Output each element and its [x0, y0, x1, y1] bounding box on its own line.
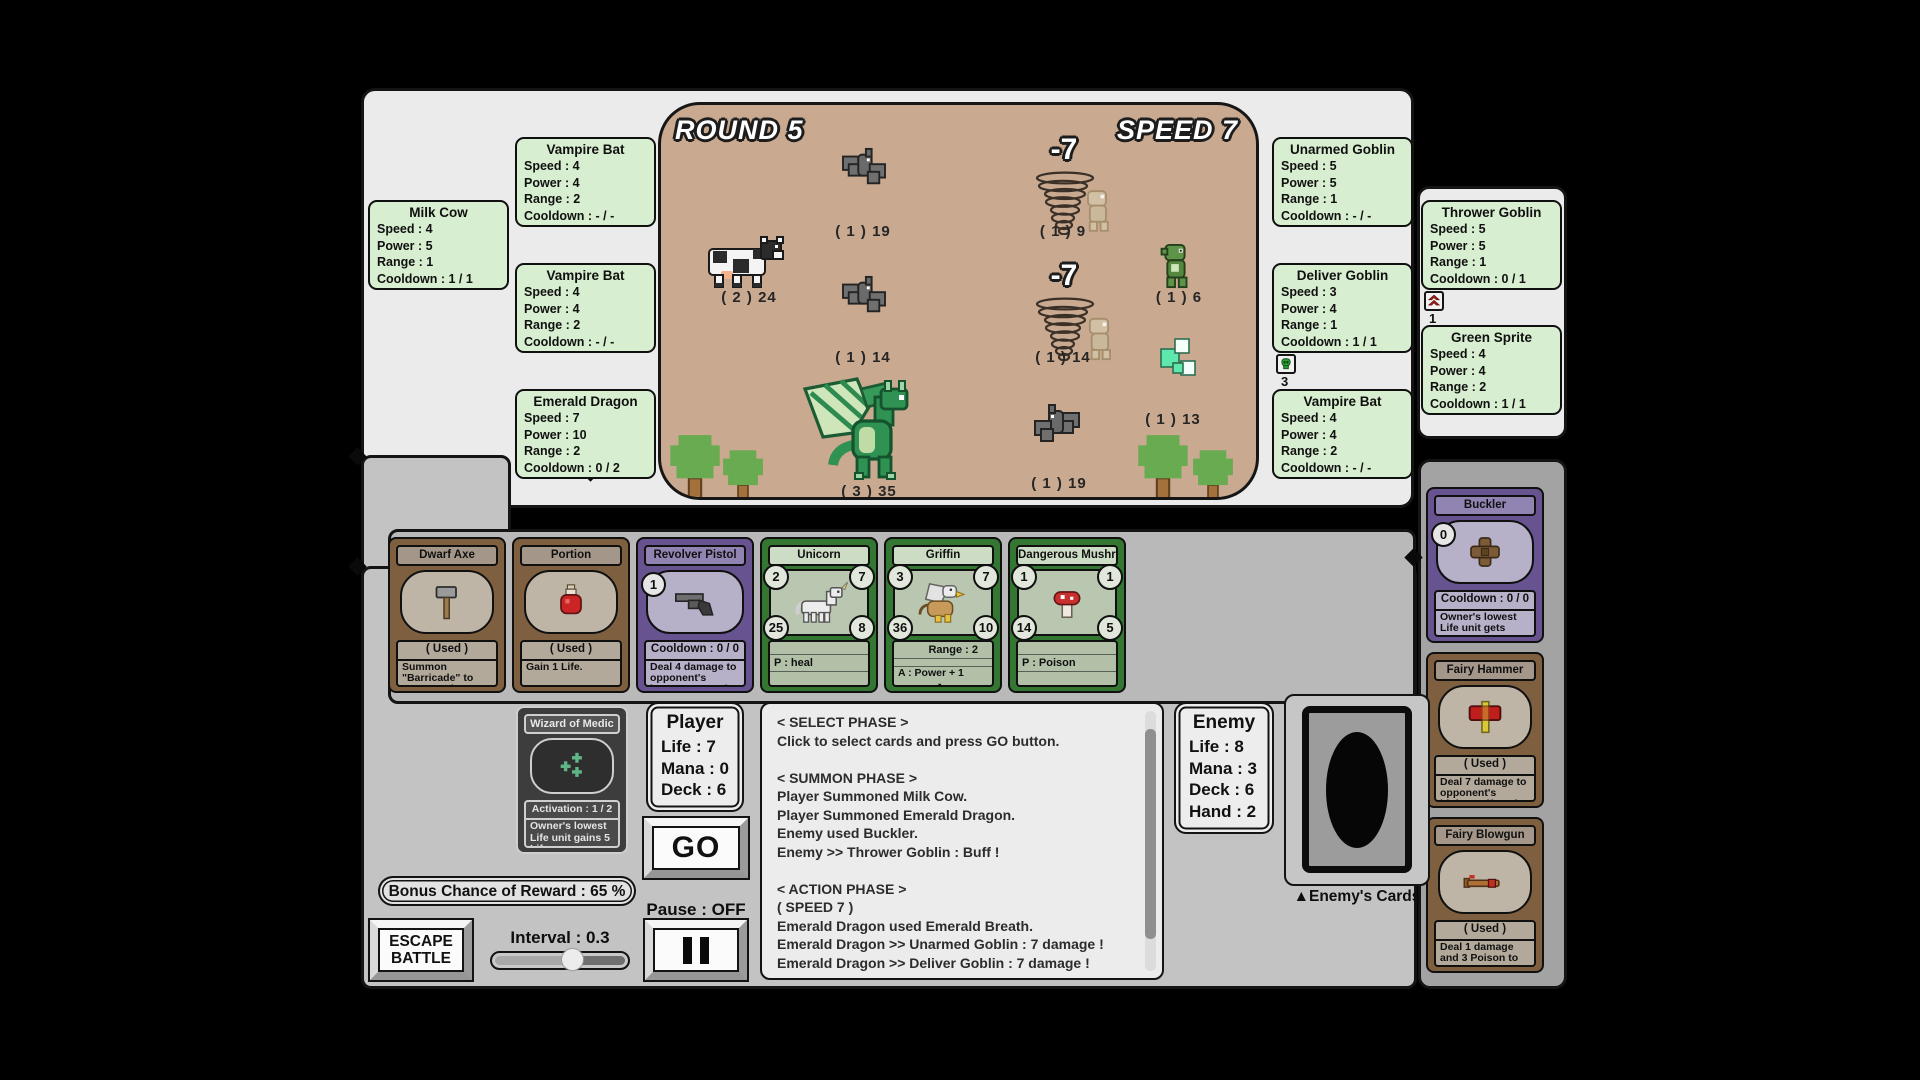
- enemy-card-buckler[interactable]: Buckler 0 Cooldown : 0 / 0 Owner's lowes…: [1426, 487, 1544, 643]
- battlefield: ROUND 5 SPEED 7 ( 1 ) 19 ( 2 ) 24: [658, 102, 1259, 500]
- bonus-reward-indicator: Bonus Chance of Reward : 65 %: [378, 876, 636, 906]
- log-line: < SUMMON PHASE >: [777, 769, 1130, 788]
- unit-count-hp-label: ( 2 ) 24: [699, 289, 799, 306]
- card-description: Deal 7 damage to opponent's highest Life…: [1436, 776, 1534, 802]
- unit-info-title: Thrower Goblin: [1430, 205, 1553, 221]
- unit-stat: Power : 4: [524, 175, 647, 192]
- green-sprite-sprite: [1155, 335, 1201, 381]
- unit-info-title: Emerald Dragon: [524, 394, 647, 410]
- unit-stat: Cooldown : 0 / 2: [524, 460, 647, 477]
- unit-stat: Power : 4: [1430, 363, 1553, 380]
- pause-button[interactable]: [645, 920, 747, 980]
- card-title: Fairy Hammer: [1434, 660, 1536, 681]
- card-status: ( Used ): [1436, 757, 1534, 776]
- card-status: Cooldown : 0 / 0: [646, 642, 744, 661]
- log-line: Click to select cards and press GO butto…: [777, 732, 1130, 751]
- unit-stat: Range : 1: [1430, 254, 1553, 271]
- card-status: Cooldown : 0 / 0: [1436, 592, 1534, 611]
- unit-count-hp-label: ( 1 ) 9: [1013, 223, 1113, 240]
- buff-chevrons-icon: [1427, 294, 1441, 308]
- unit-stat: Power : 4: [524, 301, 647, 318]
- poison-stack-count: 3: [1281, 374, 1288, 389]
- unit-stat: Speed : 4: [1430, 346, 1553, 363]
- unit-stat: Cooldown : - / -: [1281, 208, 1404, 225]
- log-line: Emerald Dragon used Emerald Breath.: [777, 917, 1130, 936]
- emerald-dragon-sprite: [799, 377, 919, 487]
- log-line: [777, 861, 1130, 880]
- unit-stat: Speed : 4: [524, 158, 647, 175]
- vampire-bat-sprite: [841, 147, 887, 189]
- hand-card-portion[interactable]: Portion ( Used ) Gain 1 Life.: [512, 537, 630, 693]
- hand-card-revolver-pistol[interactable]: Revolver Pistol 1 Cooldown : 0 / 0 Deal …: [636, 537, 754, 693]
- pause-icon: [700, 937, 709, 964]
- unit-stat: Speed : 4: [1281, 410, 1404, 427]
- hand-card-dwarf-axe[interactable]: Dwarf Axe ( Used ) Summon "Barricade" to…: [388, 537, 506, 693]
- log-line: Emerald Dragon >> Unarmed Goblin : 7 dam…: [777, 935, 1130, 954]
- card-title: Buckler: [1434, 495, 1536, 516]
- card-title: Wizard of Medic: [524, 714, 620, 734]
- unit-info-vampire-bat-1: Vampire Bat Speed : 4 Power : 4 Range : …: [515, 137, 656, 227]
- buff-status-chip: [1424, 291, 1444, 311]
- unit-stat: Power : 5: [1281, 175, 1404, 192]
- hand-card-griffin[interactable]: Griffin 3 7 36 10 Range : 2 A : Power + …: [884, 537, 1002, 693]
- escape-label-2: BATTLE: [391, 950, 451, 967]
- unit-stat: Range : 1: [1281, 317, 1404, 334]
- card-status: ( Used ): [522, 642, 620, 661]
- card-title: Griffin: [892, 545, 994, 566]
- medic-plus-icon: [550, 749, 594, 783]
- log-scrollbar-track[interactable]: [1145, 711, 1156, 971]
- card-cost-badge: 10: [973, 615, 999, 641]
- vampire-bat-sprite: [1033, 403, 1081, 447]
- card-status: ( Used ): [1436, 922, 1534, 941]
- pause-icon: [683, 937, 692, 964]
- unit-stat: Cooldown : - / -: [524, 208, 647, 225]
- interval-slider-thumb[interactable]: [562, 949, 583, 970]
- round-label: ROUND 5: [675, 115, 804, 146]
- unit-info-deliver-goblin: Deliver Goblin Speed : 3 Power : 4 Range…: [1272, 263, 1413, 353]
- unit-stat: Speed : 4: [377, 221, 500, 238]
- unit-count-hp-label: ( 1 ) 14: [1013, 349, 1113, 366]
- unit-stat: Cooldown : - / -: [1281, 460, 1404, 477]
- interval-label: Interval : 0.3: [478, 928, 642, 948]
- log-line: Player Summoned Milk Cow.: [777, 787, 1130, 806]
- tree-sprite: [1133, 431, 1193, 500]
- card-title: Unicorn: [768, 545, 870, 566]
- card-title: Revolver Pistol: [644, 545, 746, 566]
- card-speed-badge: 3: [887, 564, 913, 590]
- unit-info-title: Vampire Bat: [524, 268, 647, 284]
- unit-stat: Cooldown : 1 / 1: [1430, 396, 1553, 413]
- go-button-label: GO: [672, 831, 721, 865]
- card-power-badge: 7: [973, 564, 999, 590]
- enemy-card-fairy-hammer[interactable]: Fairy Hammer ( Used ) Deal 7 damage to o…: [1426, 652, 1544, 808]
- interval-slider-track[interactable]: [495, 956, 625, 965]
- unit-info-vampire-bat-3: Vampire Bat Speed : 4 Power : 4 Range : …: [1272, 389, 1413, 479]
- unicorn-icon: [790, 582, 848, 624]
- unit-info-vampire-bat-2: Vampire Bat Speed : 4 Power : 4 Range : …: [515, 263, 656, 353]
- card-status: ( Used ): [398, 642, 496, 661]
- unit-info-green-sprite: Green Sprite Speed : 4 Power : 4 Range :…: [1421, 325, 1562, 415]
- unit-stat: Range : 2: [524, 317, 647, 334]
- hand-card-unicorn[interactable]: Unicorn 2 7 25 8 P : heal: [760, 537, 878, 693]
- damage-popup: -7: [1029, 133, 1099, 167]
- unit-stat: Cooldown : 1 / 1: [377, 271, 500, 288]
- card-description: Deal 4 damage to opponent's lowest Cost …: [646, 661, 744, 687]
- speed-label: SPEED 7: [1117, 115, 1238, 146]
- card-description: Deal 1 damage and 3 Poison to opponent's…: [1436, 941, 1534, 967]
- log-line: < ACTION PHASE >: [777, 880, 1130, 899]
- player-stats-box: Player Life : 7 Mana : 0 Deck : 6: [646, 702, 744, 812]
- unit-info-unarmed-goblin: Unarmed Goblin Speed : 5 Power : 5 Range…: [1272, 137, 1413, 227]
- unit-info-title: Green Sprite: [1430, 330, 1553, 346]
- card-status: Activation : 1 / 2: [526, 802, 618, 820]
- card-title: Dwarf Axe: [396, 545, 498, 566]
- unit-count-hp-label: ( 1 ) 14: [813, 349, 913, 366]
- unit-stat: Speed : 4: [524, 284, 647, 301]
- card-description: Summon "Barricade" to owner's Line 1.: [398, 661, 496, 687]
- unit-stat: Power : 4: [1281, 427, 1404, 444]
- buckler-icon: [1464, 531, 1506, 573]
- milk-cow-sprite: [701, 235, 793, 293]
- log-line: [777, 750, 1130, 769]
- go-button[interactable]: GO: [644, 818, 748, 878]
- card-power-badge: 7: [849, 564, 875, 590]
- unit-stat: Speed : 7: [524, 410, 647, 427]
- escape-label-1: ESCAPE: [389, 933, 453, 950]
- unit-stat: Power : 4: [1281, 301, 1404, 318]
- enemy-cards-label: ▲Enemy's Cards: [1284, 888, 1430, 906]
- battle-log: < SELECT PHASE > Click to select cards a…: [760, 702, 1164, 980]
- unit-count-hp-label: ( 1 ) 13: [1123, 411, 1223, 428]
- unit-stat: Cooldown : 1 / 1: [1281, 334, 1404, 351]
- card-speed-badge: 1: [1011, 564, 1037, 590]
- card-speed-badge: 2: [763, 564, 789, 590]
- pause-state-label: Pause : OFF: [631, 900, 761, 920]
- player-deck: Deck : 6: [661, 779, 742, 801]
- damage-popup: -7: [1029, 259, 1099, 293]
- card-title: Dangerous Mushro...: [1016, 545, 1118, 566]
- card-title: Fairy Blowgun: [1434, 825, 1536, 846]
- unit-stat: Speed : 3: [1281, 284, 1404, 301]
- poison-status-chip: [1276, 354, 1296, 374]
- tree-sprite: [717, 447, 769, 500]
- card-title: Portion: [520, 545, 622, 566]
- unit-count-hp-label: ( 1 ) 19: [813, 223, 913, 240]
- unit-stat: Speed : 5: [1430, 221, 1553, 238]
- enemy-title: Enemy: [1176, 712, 1272, 734]
- interval-slider[interactable]: [490, 951, 630, 970]
- card-passive-text: P : Poison: [1018, 655, 1116, 672]
- log-line: < SELECT PHASE >: [777, 713, 1130, 732]
- card-active-text2: -: [894, 679, 992, 687]
- card-range-text: Range : 2: [894, 642, 992, 659]
- unit-stat: Range : 1: [377, 254, 500, 271]
- griffin-icon: [914, 580, 972, 626]
- revolver-icon: [671, 582, 719, 622]
- vampire-bat-sprite: [841, 275, 887, 317]
- unit-info-emerald-dragon: Emerald Dragon Speed : 7 Power : 10 Rang…: [515, 389, 656, 479]
- log-line: ( SPEED 7 ): [777, 898, 1130, 917]
- enemy-deck: Deck : 6: [1189, 779, 1272, 801]
- unit-count-hp-label: ( 3 ) 35: [819, 483, 919, 500]
- card-power-badge: 1: [1097, 564, 1123, 590]
- enemy-card-back: [1302, 706, 1412, 873]
- log-line: Player Summoned Emerald Dragon.: [777, 806, 1130, 825]
- unit-stat: Cooldown : 0 / 1: [1430, 271, 1553, 288]
- hammer-icon: [1462, 694, 1508, 740]
- unit-info-milk-cow: Milk Cow Speed : 4 Power : 5 Range : 1 C…: [368, 200, 509, 290]
- card-back-ellipse-icon: [1326, 732, 1388, 848]
- player-title: Player: [648, 712, 742, 734]
- card-active-text: A : Power + 1: [894, 667, 992, 679]
- unit-info-title: Unarmed Goblin: [1281, 142, 1404, 158]
- card-life-badge: 25: [763, 615, 789, 641]
- tree-sprite: [665, 431, 725, 500]
- card-cost-badge: 0: [1431, 522, 1456, 547]
- unit-stat: Range : 2: [524, 191, 647, 208]
- card-cost-badge: 1: [641, 572, 666, 597]
- enemy-cards-holder: [1284, 694, 1430, 886]
- card-passive-text: P : heal: [770, 655, 868, 672]
- unit-stat: Speed : 5: [1281, 158, 1404, 175]
- escape-battle-button[interactable]: ESCAPE BATTLE: [370, 920, 472, 980]
- card-description: Owner's lowest Life unit gains 5 Life.: [526, 820, 618, 848]
- log-line: Emerald Dragon >> Deliver Goblin : 7 dam…: [777, 954, 1130, 973]
- unit-stat: Power : 5: [377, 238, 500, 255]
- player-life: Life : 7: [661, 736, 742, 758]
- unit-stat: Range : 2: [524, 443, 647, 460]
- buff-stack-count: 1: [1429, 311, 1436, 326]
- unit-stat: Range : 2: [1281, 443, 1404, 460]
- blowgun-icon: [1459, 868, 1511, 896]
- unit-stat: Range : 2: [1430, 379, 1553, 396]
- card-cost-badge: 5: [1097, 615, 1123, 641]
- enemy-stats-box: Enemy Life : 8 Mana : 3 Deck : 6 Hand : …: [1174, 702, 1274, 834]
- unit-stat: Cooldown : - / -: [524, 334, 647, 351]
- player-mana: Mana : 0: [661, 758, 742, 780]
- unit-info-thrower-goblin: Thrower Goblin Speed : 5 Power : 5 Range…: [1421, 200, 1562, 290]
- enemy-mana: Mana : 3: [1189, 758, 1272, 780]
- unit-info-title: Milk Cow: [377, 205, 500, 221]
- field-card-wizard-of-medic[interactable]: Wizard of Medic Activation : 1 / 2 Owner…: [516, 706, 628, 854]
- log-line: Enemy used Buckler.: [777, 824, 1130, 843]
- green-goblin-sprite: [1155, 243, 1195, 289]
- axe-icon: [426, 580, 468, 624]
- card-description: Owner's lowest Life unit gets "Prevents …: [1436, 611, 1534, 637]
- enemy-life: Life : 8: [1189, 736, 1272, 758]
- log-line: Enemy >> Thrower Goblin : Buff !: [777, 843, 1130, 862]
- card-cost-badge: 8: [849, 615, 875, 641]
- unit-stat: Power : 5: [1430, 238, 1553, 255]
- unit-stat: Power : 10: [524, 427, 647, 444]
- card-life-badge: 36: [887, 615, 913, 641]
- enemy-card-fairy-blowgun[interactable]: Fairy Blowgun ( Used ) Deal 1 damage and…: [1426, 817, 1544, 973]
- unit-info-title: Vampire Bat: [524, 142, 647, 158]
- hand-card-dangerous-mushroom[interactable]: Dangerous Mushro... 1 1 14 5 P : Poison: [1008, 537, 1126, 693]
- mushroom-icon: [1048, 584, 1086, 622]
- card-life-badge: 14: [1011, 615, 1037, 641]
- unit-info-title: Vampire Bat: [1281, 394, 1404, 410]
- unit-count-hp-label: ( 1 ) 6: [1129, 289, 1229, 306]
- poison-skull-icon: [1279, 357, 1293, 371]
- potion-icon: [551, 581, 591, 623]
- log-scrollbar-thumb[interactable]: [1145, 729, 1156, 939]
- unit-count-hp-label: ( 1 ) 19: [1009, 475, 1109, 492]
- enemy-hand: Hand : 2: [1189, 801, 1272, 823]
- unit-info-title: Deliver Goblin: [1281, 268, 1404, 284]
- tree-sprite: [1187, 447, 1239, 500]
- unit-stat: Range : 1: [1281, 191, 1404, 208]
- card-description: Gain 1 Life.: [522, 661, 620, 674]
